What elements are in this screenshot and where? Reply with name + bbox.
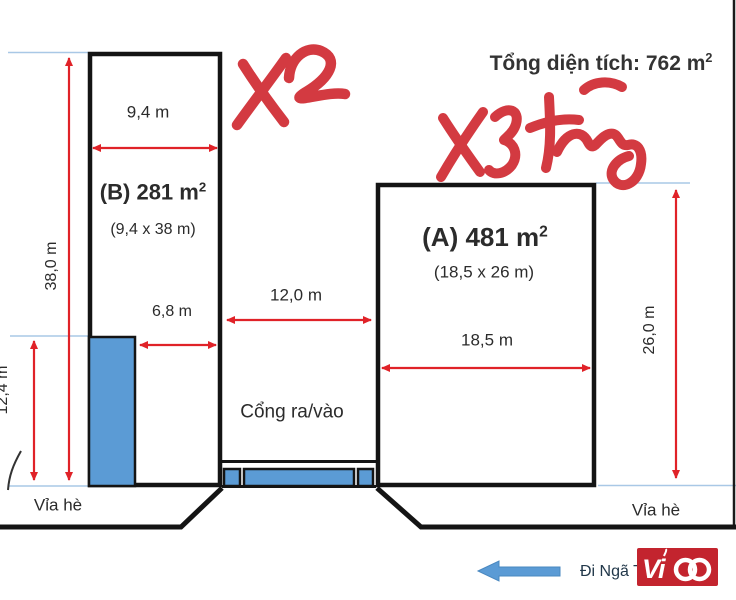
building-b-height-label: 38,0 m	[44, 242, 60, 291]
sidewalk-right-label: Vỉa hè	[632, 502, 680, 519]
building-a-dims-label: (18,5 x 26 m)	[434, 264, 534, 281]
annex-height-label: 12,4 m	[0, 366, 11, 415]
gate-strip-right	[358, 469, 373, 486]
gate-width-label: 12,0 m	[270, 287, 322, 304]
handwritten-note-x2: X2	[237, 50, 345, 125]
building-b-dims-label: (9,4 x 38 m)	[110, 222, 195, 238]
direction-arrow-left-icon	[478, 561, 560, 581]
road-edge-curve	[8, 451, 21, 490]
building-b-annex-block	[89, 337, 135, 486]
building-b-title-superscript: 2	[199, 179, 206, 194]
diagram-linework: X2 X3 tầng	[0, 0, 736, 600]
total-area-superscript: 2	[705, 51, 712, 65]
gate-strip-left	[224, 469, 240, 486]
curb-line-right	[377, 488, 736, 527]
building-b-title: (B) 281 m2	[100, 180, 206, 203]
gate-strip-middle	[244, 469, 354, 486]
vico-logo-text: Vi	[642, 554, 666, 584]
direction-label: Đi Ngã T	[580, 564, 643, 580]
total-area-label: Tổng diện tích: 762 m2	[490, 52, 713, 74]
vico-logo: Vico Vi	[637, 548, 718, 586]
sidewalk-left-label: Vỉa hè	[34, 497, 82, 514]
building-b-width-label: 9,4 m	[127, 104, 170, 121]
gate-label: Cổng ra/vào	[240, 403, 344, 422]
land-plot-diagram: X2 X3 tầng Tổng diện tích: 762 m2 9,4 m …	[0, 0, 736, 600]
building-b-inner-width-label: 6,8 m	[152, 304, 192, 320]
building-a-height-label: 26,0 m	[642, 306, 658, 355]
building-a-title: (A) 481 m2	[422, 224, 548, 250]
building-a-title-superscript: 2	[539, 223, 548, 240]
handwritten-note-x3-tang: X3 tầng	[441, 82, 641, 185]
building-a-width-label: 18,5 m	[461, 332, 513, 349]
